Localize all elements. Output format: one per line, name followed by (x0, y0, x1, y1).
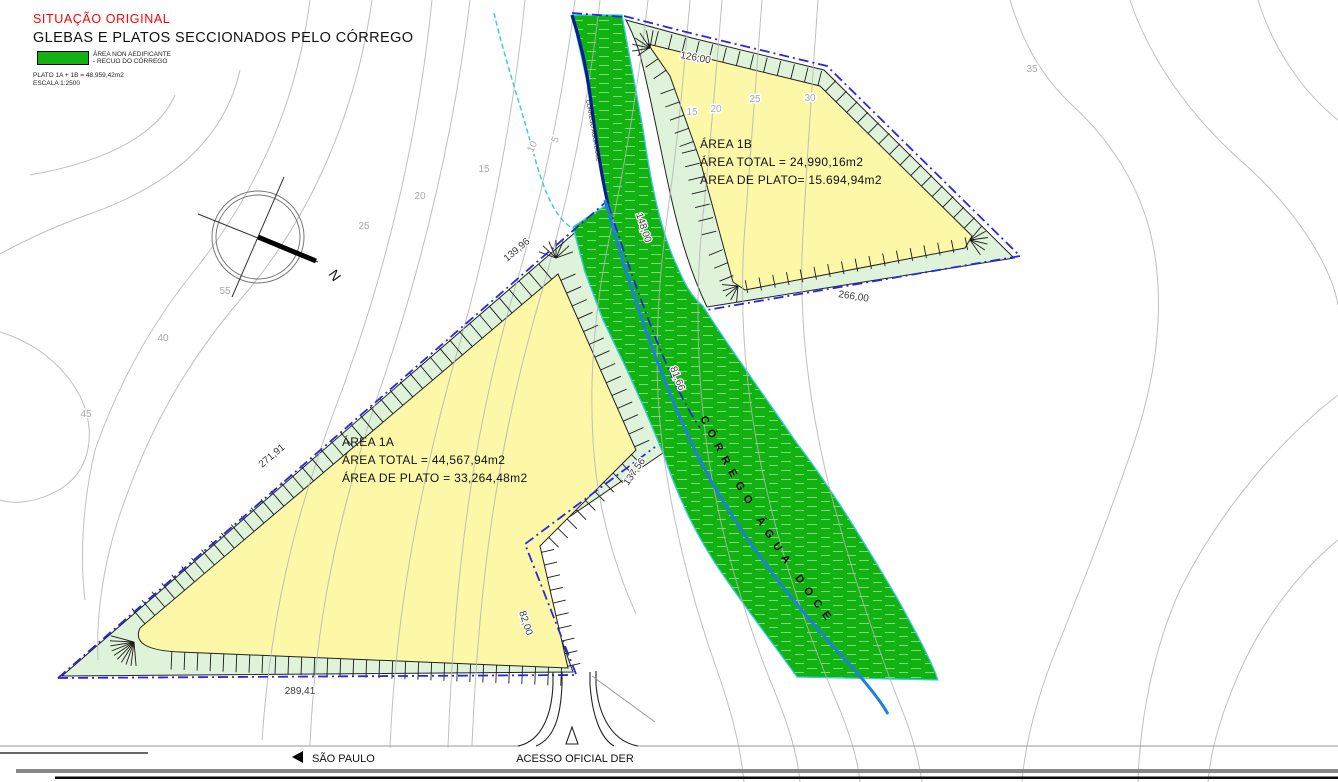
contour-line (0, 70, 240, 254)
legend: ÁREA NON AEDIFICANTE - RECUO DO CÓRREGO (37, 51, 413, 65)
contour-line (30, 95, 175, 175)
contour-line (1130, 0, 1338, 305)
page-title: SITUAÇÃO ORIGINAL (33, 12, 413, 26)
compass-rose: N (198, 177, 344, 297)
contour-line (1010, 0, 1158, 782)
area-1a-plato: ÁREA DE PLATO = 33,264,48m2 (342, 470, 527, 485)
dim-289-41: 289,41 (285, 686, 316, 697)
contour-label-35: 35 (1026, 64, 1038, 75)
roads: SÃO PAULO ACESSO OFICIAL DER (0, 671, 1338, 779)
contour-label-10: 10 (525, 139, 540, 154)
legend-line1: ÁREA NON AEDIFICANTE (93, 51, 171, 58)
dim-139-96: 139,96 (502, 236, 533, 264)
contour-label-20: 20 (414, 191, 426, 202)
area-1b-name: ÁREA 1B (700, 136, 752, 151)
notes: PLATO 1A + 1B = 48,959,42m2 ESCALA 1:250… (33, 72, 413, 88)
contour-label-55: 55 (219, 286, 231, 297)
dim-271-91: 271,91 (257, 442, 288, 470)
contour-line (0, 332, 89, 502)
contour-line (1138, 395, 1338, 782)
area-1a-name: ÁREA 1A (342, 434, 394, 449)
north-label: N (326, 267, 345, 284)
contour-line (1258, 0, 1338, 120)
road-label-acesso: ACESSO OFICIAL DER (516, 753, 634, 765)
contour-label-15b: 15 (686, 107, 698, 118)
site-plan-drawing: N SÃO PAULO ACESSO OFICIAL DER 139,96 27… (0, 0, 1338, 782)
north-needle (258, 237, 316, 261)
road-label-sao-paulo: SÃO PAULO (312, 752, 375, 765)
contour-label-25: 25 (358, 221, 370, 232)
area-1b-total: ÁREA TOTAL = 24,990,16m2 (700, 154, 863, 169)
title-block: SITUAÇÃO ORIGINAL GLEBAS E PLATOS SECCIO… (33, 12, 413, 88)
contour-label-40: 40 (157, 333, 169, 344)
contour-label-15: 15 (478, 164, 490, 175)
stream-upstream-dashed (494, 13, 572, 228)
sao-paulo-arrow-icon (292, 751, 303, 763)
contour-label-20b: 20 (710, 104, 722, 115)
contour-label-30b: 30 (804, 93, 816, 104)
legend-swatch (37, 51, 89, 65)
site-plan-canvas: SITUAÇÃO ORIGINAL GLEBAS E PLATOS SECCIO… (0, 0, 1338, 782)
legend-text: ÁREA NON AEDIFICANTE - RECUO DO CÓRREGO (93, 51, 171, 65)
area-1b-plato: ÁREA DE PLATO= 15.694,94m2 (700, 172, 882, 187)
legend-line2: - RECUO DO CÓRREGO (93, 58, 167, 65)
note-plato: PLATO 1A + 1B = 48,959,42m2 (33, 72, 413, 80)
note-escala: ESCALA 1:2500 (33, 80, 413, 88)
area-1a-total: ÁREA TOTAL = 44,567,94m2 (342, 452, 505, 467)
dim-266-00: 266,00 (838, 289, 870, 305)
contour-label-45: 45 (80, 409, 92, 420)
access-road (518, 671, 655, 746)
page-subtitle: GLEBAS E PLATOS SECCIONADOS PELO CÓRREGO (33, 30, 413, 46)
contour-label-25b: 25 (749, 94, 761, 105)
